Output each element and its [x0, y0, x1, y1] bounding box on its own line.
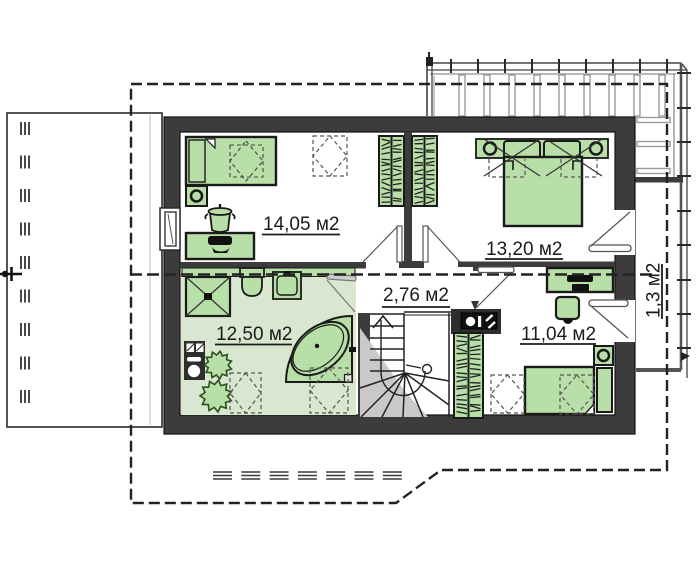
svg-text:2,76 м2: 2,76 м2 [383, 285, 449, 306]
svg-text:14,05 м2: 14,05 м2 [263, 214, 339, 235]
svg-text:11,04 м2: 11,04 м2 [521, 324, 596, 345]
svg-text:12,50 м2: 12,50 м2 [216, 324, 292, 345]
svg-text:13,20 м2: 13,20 м2 [486, 239, 562, 260]
